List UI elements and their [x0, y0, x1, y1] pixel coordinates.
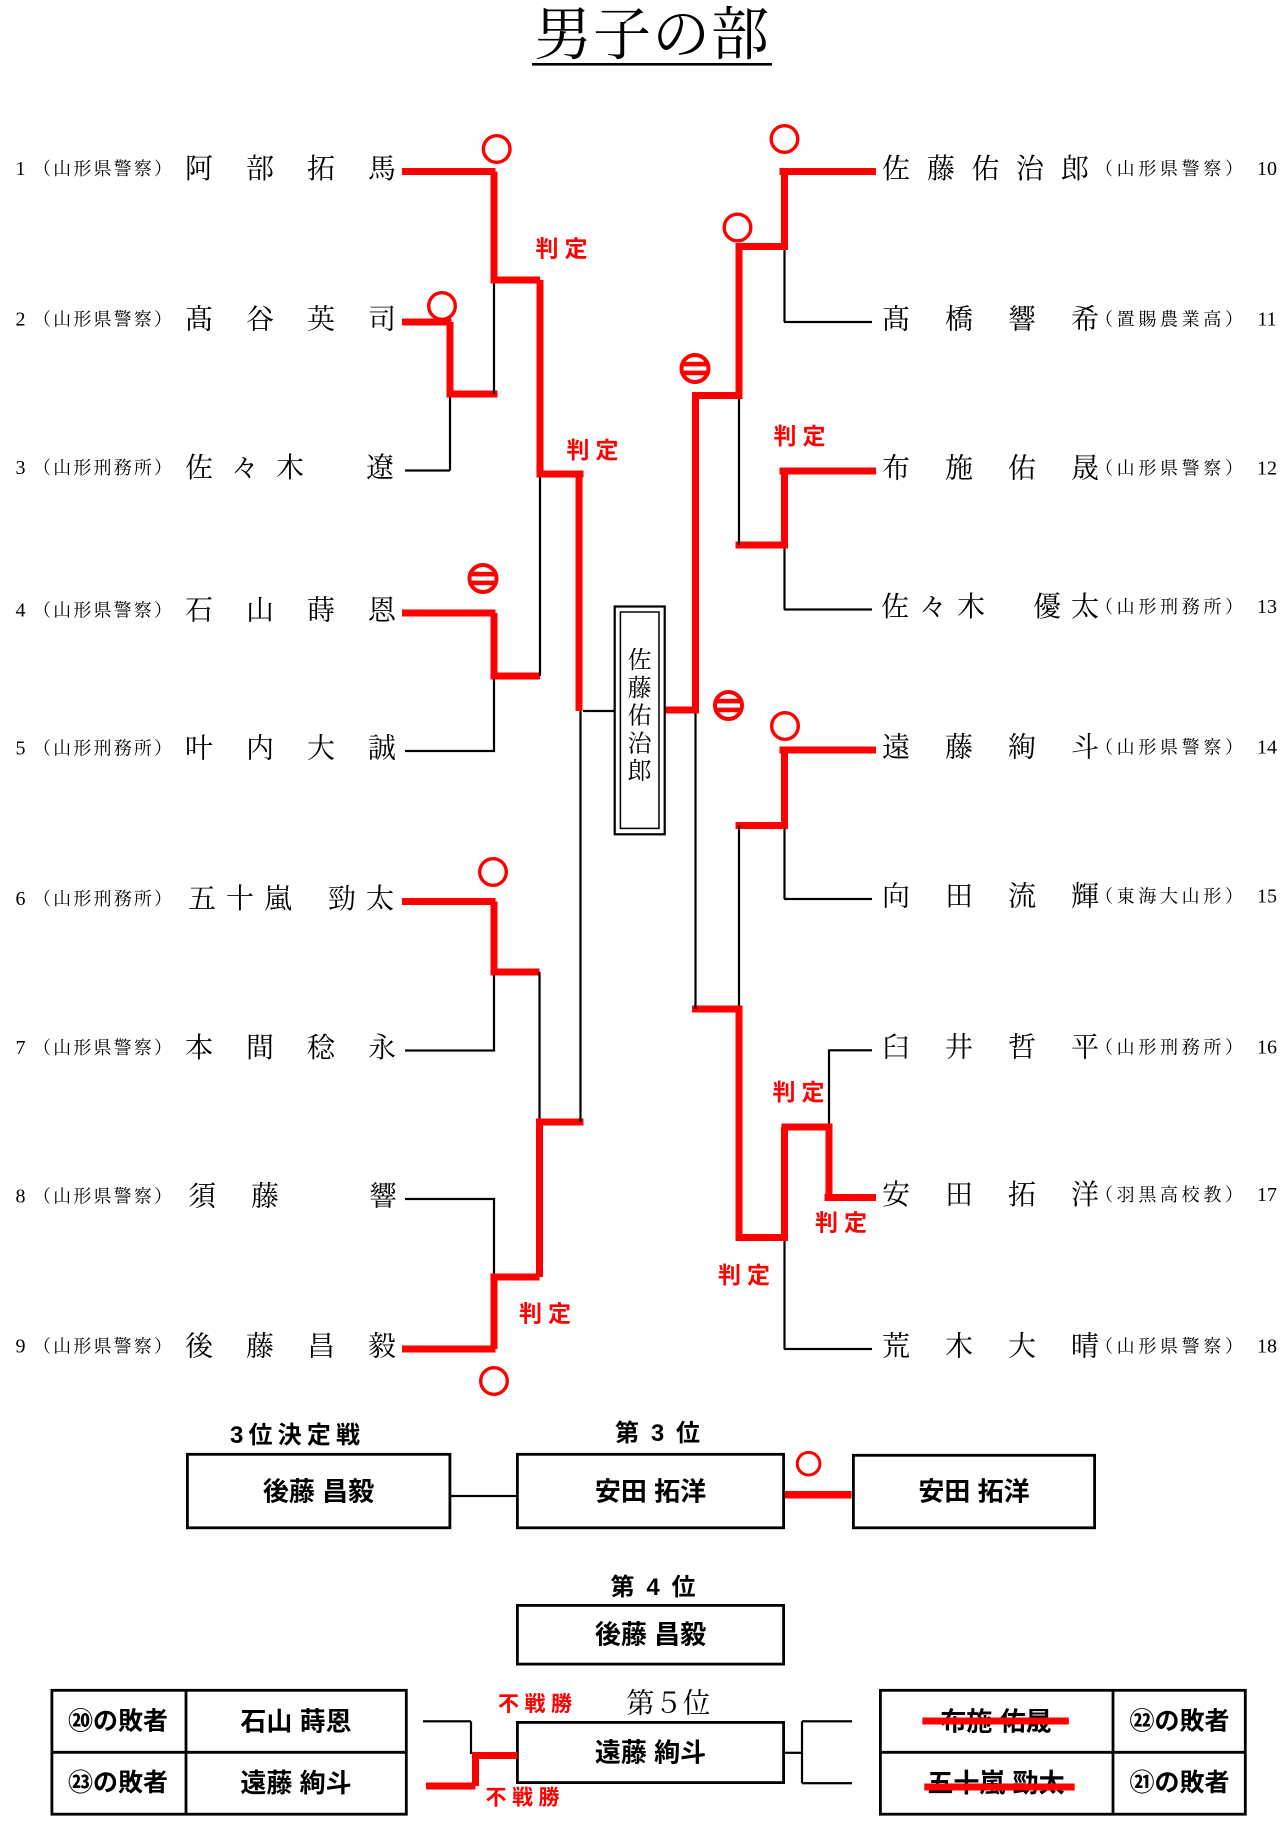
svg-text:第4位: 第4位 — [611, 1574, 696, 1601]
svg-text:後藤 昌毅: 後藤 昌毅 — [595, 1620, 706, 1650]
svg-text:10: 10 — [1257, 158, 1277, 180]
svg-text:後藤 昌毅: 後藤 昌毅 — [263, 1477, 374, 1507]
svg-text:安田 拓洋: 安田 拓洋 — [595, 1477, 706, 1507]
svg-text:3位決定戦: 3位決定戦 — [230, 1422, 360, 1449]
svg-text:（羽黒高校教）: （羽黒高校教） — [1095, 1185, 1243, 1205]
svg-text:5: 5 — [16, 737, 26, 759]
svg-text:9: 9 — [16, 1335, 26, 1357]
svg-text:13: 13 — [1257, 596, 1277, 618]
svg-text:⑳の敗者: ⑳の敗者 — [68, 1707, 168, 1735]
svg-text:18: 18 — [1257, 1335, 1277, 1357]
svg-text:（山形刑務所）: （山形刑務所） — [33, 889, 172, 909]
svg-text:㉑の敗者: ㉑の敗者 — [1129, 1769, 1229, 1797]
svg-text:佐藤佑治郎: 佐藤佑治郎 — [628, 647, 653, 785]
svg-text:16: 16 — [1257, 1037, 1277, 1059]
svg-text:（山形県警察）: （山形県警察） — [33, 1185, 172, 1206]
svg-text:14: 14 — [1257, 736, 1277, 758]
svg-text:8: 8 — [16, 1185, 26, 1207]
svg-text:（山形刑務所）: （山形刑務所） — [33, 458, 172, 478]
svg-text:㉒の敗者: ㉒の敗者 — [1129, 1707, 1229, 1735]
svg-text:男子の部: 男子の部 — [534, 2, 769, 67]
svg-text:㉓の敗者: ㉓の敗者 — [68, 1769, 168, 1797]
svg-text:（東海大山形）: （東海大山形） — [1095, 886, 1243, 906]
svg-text:6: 6 — [16, 888, 26, 910]
svg-text:（山形県警察）: （山形県警察） — [1095, 158, 1243, 179]
svg-text:不戦勝: 不戦勝 — [498, 1693, 572, 1716]
svg-text:第５位: 第５位 — [626, 1688, 710, 1720]
svg-text:第3位: 第3位 — [615, 1420, 700, 1447]
svg-text:1: 1 — [16, 158, 26, 180]
svg-text:7: 7 — [16, 1037, 26, 1059]
svg-text:（山形県警察）: （山形県警察） — [33, 308, 172, 329]
svg-text:（置賜農業高）: （置賜農業高） — [1095, 309, 1243, 329]
svg-text:遠藤 絢斗: 遠藤 絢斗 — [595, 1738, 706, 1768]
svg-text:（山形県警察）: （山形県警察） — [1095, 736, 1243, 757]
svg-text:五十嵐 勁太: 五十嵐 勁太 — [927, 1768, 1064, 1798]
svg-text:（山形県警察）: （山形県警察） — [1095, 1335, 1243, 1356]
svg-text:（山形県警察）: （山形県警察） — [33, 1335, 172, 1356]
svg-text:4: 4 — [16, 599, 26, 621]
svg-text:（山形県警察）: （山形県警察） — [33, 599, 172, 620]
svg-text:（山形刑務所）: （山形刑務所） — [1095, 1038, 1243, 1058]
svg-text:（山形刑務所）: （山形刑務所） — [1095, 597, 1243, 617]
svg-text:15: 15 — [1257, 885, 1277, 907]
svg-text:（山形県警察）: （山形県警察） — [33, 1037, 172, 1058]
svg-text:遠藤 絢斗: 遠藤 絢斗 — [240, 1768, 351, 1798]
svg-text:安田 拓洋: 安田 拓洋 — [918, 1477, 1029, 1507]
svg-text:不戦勝: 不戦勝 — [486, 1787, 560, 1810]
svg-text:3: 3 — [16, 457, 26, 479]
svg-text:12: 12 — [1257, 457, 1277, 479]
svg-text:（山形県警察）: （山形県警察） — [1095, 457, 1243, 478]
svg-text:石山 蒔恩: 石山 蒔恩 — [240, 1706, 351, 1736]
svg-text:（山形刑務所）: （山形刑務所） — [33, 738, 172, 758]
svg-text:17: 17 — [1257, 1184, 1277, 1206]
svg-text:（山形県警察）: （山形県警察） — [33, 158, 172, 179]
svg-text:11: 11 — [1257, 308, 1276, 330]
svg-text:2: 2 — [16, 308, 26, 330]
